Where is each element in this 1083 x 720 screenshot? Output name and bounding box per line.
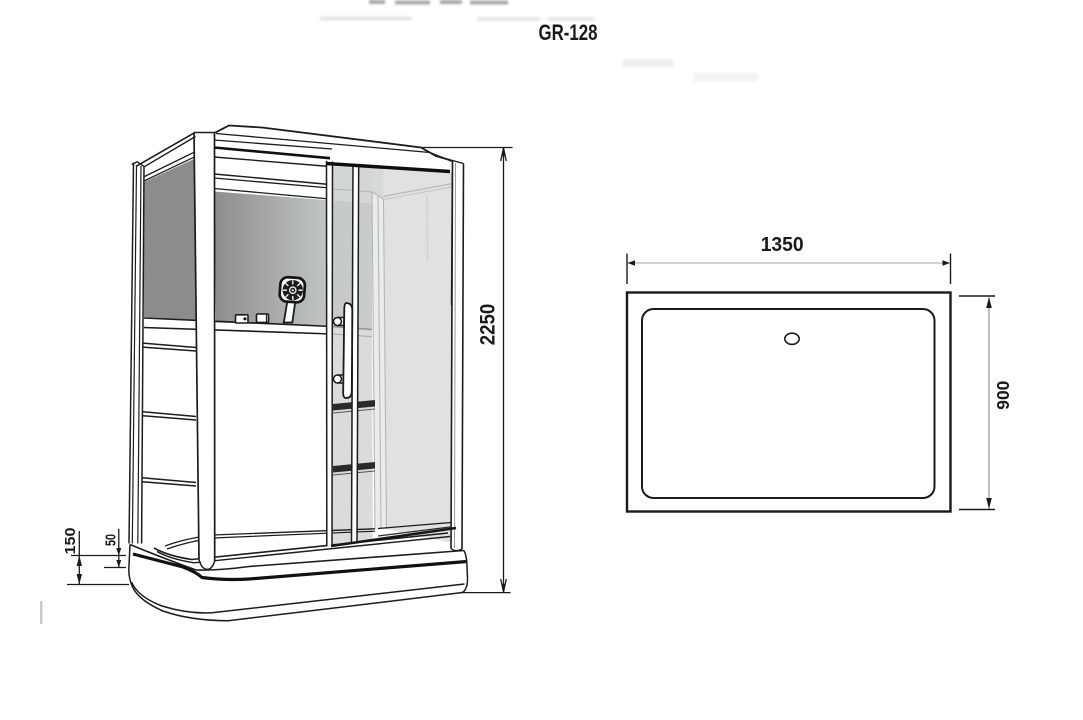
svg-text:GR-128: GR-128 [539, 20, 598, 45]
svg-text:1350: 1350 [761, 233, 804, 256]
svg-text:900: 900 [993, 380, 1013, 409]
svg-text:150: 150 [63, 528, 79, 555]
svg-text:2250: 2250 [476, 304, 500, 346]
svg-text:50: 50 [103, 534, 119, 546]
